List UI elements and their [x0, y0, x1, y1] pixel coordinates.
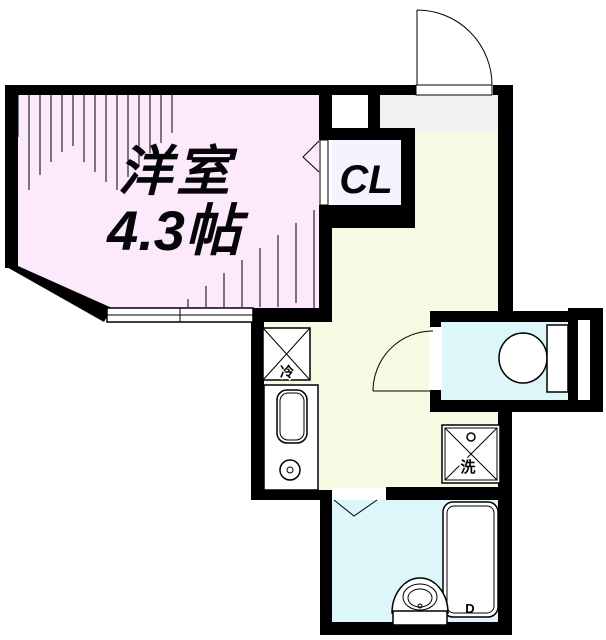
laundry-label: 洗 — [460, 458, 475, 476]
floor-plan-canvas: 冷 洗 D 洋室 4.3帖 CL — [0, 0, 606, 640]
western-room-size: 4.3帖 — [106, 199, 249, 262]
toilet-window — [578, 320, 590, 400]
entry-floor — [380, 95, 498, 132]
western-room-name: 洋室 — [118, 142, 238, 202]
western-room-window — [107, 308, 253, 322]
laundry-space: 洗 — [442, 425, 500, 483]
closet-label: CL — [339, 158, 392, 202]
bathtub: D — [443, 502, 498, 617]
toilet-tank-icon — [547, 325, 568, 392]
toilet-bowl-icon — [499, 333, 547, 383]
floor-plan: 冷 洗 D 洋室 4.3帖 CL — [0, 0, 606, 640]
refrigerator-label: 冷 — [280, 364, 294, 380]
refrigerator-space: 冷 — [263, 328, 310, 380]
kitchen-counter — [264, 385, 318, 490]
faucet-icon — [467, 433, 475, 441]
bathtub-drain-label: D — [465, 601, 474, 616]
burner-icon — [280, 460, 300, 480]
